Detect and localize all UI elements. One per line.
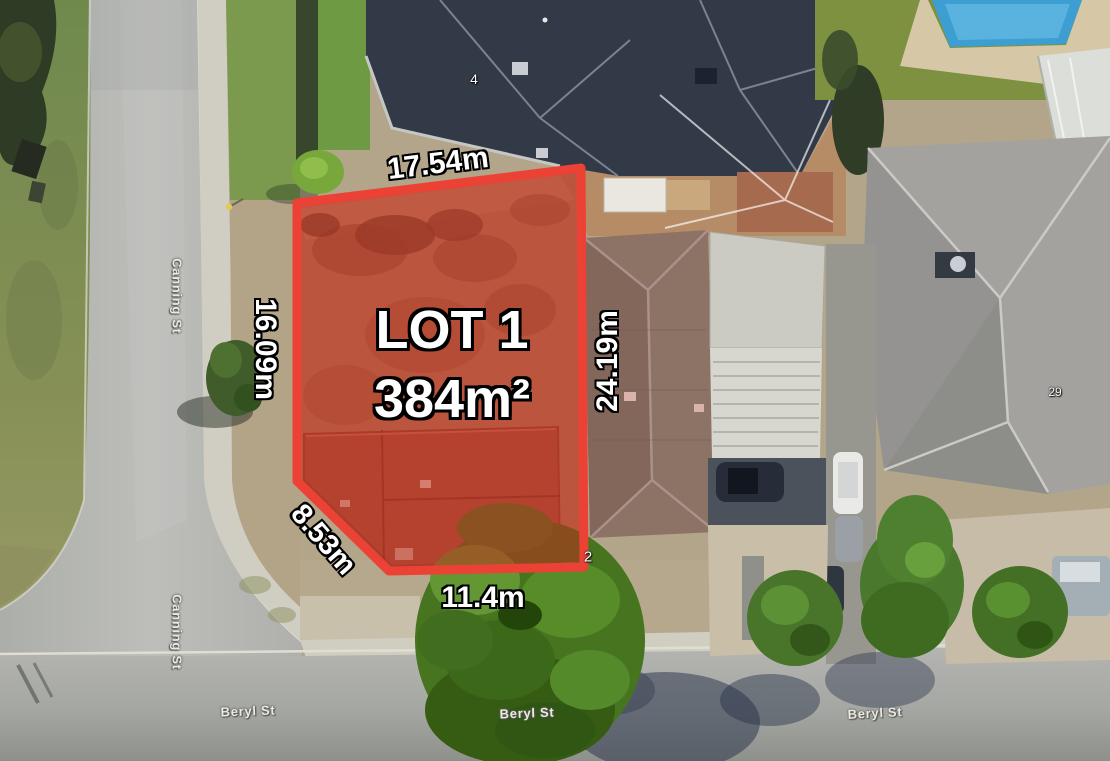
street-label-beryl-center: Beryl St: [499, 706, 554, 721]
dimension-label-right: 24.19m: [593, 310, 623, 412]
house-right-gray-roof: [862, 136, 1110, 494]
street-label-beryl-right: Beryl St: [847, 705, 902, 721]
dimension-label-left: 16.09m: [250, 298, 280, 400]
lot-name-label: LOT 1: [375, 303, 528, 357]
lot-area-label: 384m²: [374, 372, 530, 426]
satellite-imagery: [0, 0, 1110, 761]
aerial-map-view[interactable]: LOT 1 384m² 17.54m 16.09m 24.19m 8.53m 1…: [0, 0, 1110, 761]
silver-car: [835, 516, 863, 562]
street-label-beryl-left: Beryl St: [220, 704, 275, 719]
house-number-29: 29: [1048, 386, 1061, 398]
street-lamp: [226, 204, 232, 210]
street-label-canning-lower: Canning St: [171, 594, 184, 670]
house-number-4: 4: [470, 72, 478, 86]
house-number-2: 2: [584, 550, 592, 565]
street-label-canning-upper: Canning St: [171, 258, 184, 334]
dimension-label-bottom: 11.4m: [441, 583, 524, 613]
